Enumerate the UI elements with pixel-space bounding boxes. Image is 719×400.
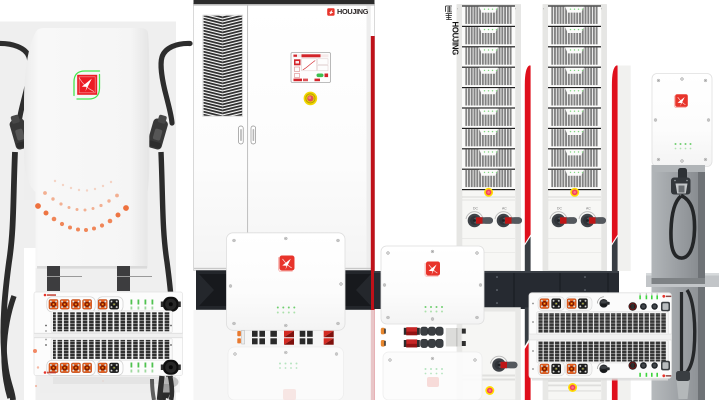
svg-text:HOUJING: HOUJING [451,22,460,56]
svg-text:HOUJING: HOUJING [337,7,369,16]
svg-text:AC: AC [502,207,507,211]
svg-text:DC: DC [557,207,562,211]
svg-text:DC: DC [473,207,478,211]
svg-text:AC: AC [586,207,591,211]
